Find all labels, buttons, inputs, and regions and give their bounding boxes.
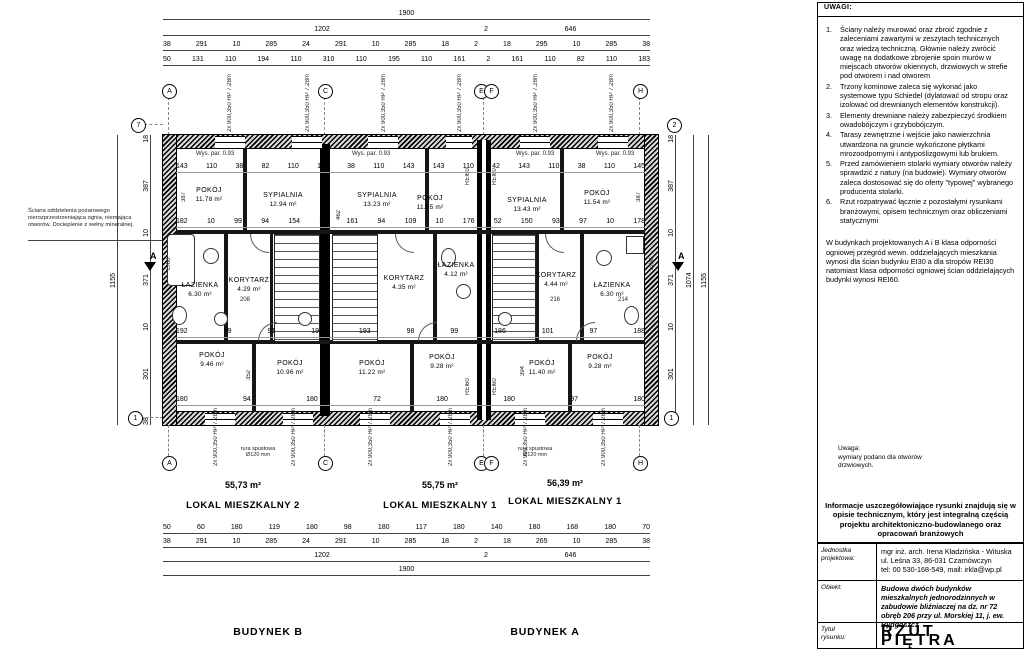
dim-top-total: 1900 xyxy=(163,10,650,20)
axis-2-right: 2 xyxy=(667,118,682,133)
stair-flight xyxy=(492,234,536,342)
dim-bot-row2: 38 291 10 285 24 291 10 285 18 2 18 265 … xyxy=(163,538,650,548)
room-name: POKÓJ xyxy=(429,353,455,362)
axis-c-bottom: C xyxy=(318,456,333,471)
dim-387: 387 xyxy=(636,178,642,202)
room-name: ŁAZIENKA xyxy=(181,281,218,290)
wall-class-label: REI60 xyxy=(492,365,498,395)
room-name: KORYTARZ xyxy=(384,274,425,283)
section-arrow-icon xyxy=(672,262,684,271)
party-wall xyxy=(477,140,491,420)
leader-line xyxy=(28,240,163,241)
window xyxy=(368,136,398,149)
notes-box: 1.Ściany należy murować oraz zbroić zgod… xyxy=(818,16,1023,543)
dim-216: 216 xyxy=(550,297,560,303)
room-name: SYPIALNIA xyxy=(263,191,303,200)
ext-wall-right xyxy=(645,135,658,425)
room-area: 4.35 m² xyxy=(384,283,425,292)
note-item: 4.Tarasy zewnętrzne i wejście jako nawie… xyxy=(826,130,1015,158)
dim-top-sub-left: 1202 xyxy=(163,26,481,36)
axis-h-bottom: H xyxy=(633,456,648,471)
designer-address: ul. Leśna 33, 86-031 Czarnówczyn xyxy=(881,556,1019,565)
note-item: 3.Elementy drewniane należy zabezpieczyć… xyxy=(826,111,1015,130)
note-number: 6. xyxy=(826,197,840,225)
room-area: 10.96 m² xyxy=(276,368,303,377)
note-text: Rzut rozpatrywać łącznie z pozostałymi r… xyxy=(840,197,1015,225)
room-area: 9.28 m² xyxy=(429,362,455,371)
axis-line xyxy=(639,425,640,456)
toilet xyxy=(624,306,639,325)
room-name: POKÓJ xyxy=(587,353,613,362)
window-mark: 2x 900,350 HP 7.28m xyxy=(457,92,463,132)
toilet xyxy=(172,306,187,325)
dim-top-sub-right: 646 xyxy=(491,26,650,36)
stair-flight xyxy=(332,234,378,342)
room-label: SYPIALNIA12.94 m² xyxy=(263,191,303,209)
room-name: KORYTARZ xyxy=(229,276,270,285)
window-mark: 2x 900,350 HP 7.28m xyxy=(291,428,297,466)
window xyxy=(446,136,472,149)
room-area: 4.44 m² xyxy=(536,280,577,289)
sink xyxy=(596,250,612,266)
axis-c-top: C xyxy=(318,84,333,99)
dim-bot-sub-mid: 2 xyxy=(481,552,491,562)
window-mark: 2x 900,350 HP 7.28m xyxy=(609,92,615,132)
unit-label: LOKAL MIESZKALNY 2 xyxy=(186,500,300,511)
note-item: 6.Rzut rozpatrywać łącznie z pozostałymi… xyxy=(826,197,1015,225)
drawing-title: RZUT PIĘTRA xyxy=(877,623,1023,649)
building-b-label: BUDYNEK B xyxy=(233,626,303,638)
axis-a-top: A xyxy=(162,84,177,99)
unit-area: 56,39 m² xyxy=(547,478,583,488)
dim-left-total: 1155 xyxy=(110,135,118,425)
designer-info: mgr inż. arch. Irena Kładzińska - Witusk… xyxy=(877,544,1023,581)
dim-right-segs: 38 301 10 371 10 387 18 xyxy=(668,135,676,425)
dim-bot-row1: 50 60 180 119 180 98 180 117 180 140 180… xyxy=(163,524,650,534)
room-label: POKÓJ9.28 m² xyxy=(429,353,455,371)
axis-line xyxy=(324,425,325,456)
window xyxy=(360,413,390,426)
note-text: Ściany należy murować oraz zbroić zgodni… xyxy=(840,25,1015,81)
axis-line xyxy=(324,97,325,135)
room-area: 12.94 m² xyxy=(263,200,303,209)
stair-flight xyxy=(274,234,320,342)
room-area: 9.28 m² xyxy=(587,362,613,371)
window-mark: 2x 900,350 HP 7.28m xyxy=(305,92,311,132)
downpipe-label: rura spustowa Ø120 mm xyxy=(505,446,565,458)
room-area: 11.40 m² xyxy=(529,368,556,377)
dim-left-segs: 38 301 10 371 10 387 18 xyxy=(143,135,151,425)
note-number: 4. xyxy=(826,130,840,158)
window xyxy=(440,413,470,426)
partition xyxy=(580,234,584,340)
sill-height-label: Wys. par. 0.93 xyxy=(516,151,554,157)
window xyxy=(520,136,550,149)
window xyxy=(283,413,313,426)
note-item: 5.Przed zamówieniem stolarki wymiary otw… xyxy=(826,159,1015,196)
room-area: 11.54 m² xyxy=(584,198,611,207)
room-area: 4.12 m² xyxy=(437,270,474,279)
dim-right-inner: 1074 xyxy=(686,135,694,425)
axis-7-left: 7 xyxy=(131,118,146,133)
window xyxy=(292,136,322,149)
title-block-object-row: Obiekt: Budowa dwóch budynków mieszkalny… xyxy=(818,580,1023,623)
axis-line xyxy=(144,124,163,125)
axis-h-top: H xyxy=(633,84,648,99)
note-text: Przed zamówieniem stolarki wymiary otwor… xyxy=(840,159,1015,196)
unit-area: 55,75 m² xyxy=(422,480,458,490)
room-label: KORYTARZ4.29 m² xyxy=(229,276,270,294)
note-item: 1.Ściany należy murować oraz zbroić zgod… xyxy=(826,25,1015,81)
note-text: Tarasy zewnętrzne i wejście jako nawierz… xyxy=(840,130,1015,158)
window-mark: 2x 900,350 HP 7.28m xyxy=(601,428,607,466)
floor-plan-sheet: 1900 1202 2 646 38 291 10 285 24 291 10 … xyxy=(0,0,1024,650)
title-block-designer-row: Jednostka projektowa: mgr inż. arch. Ire… xyxy=(818,543,1023,581)
fire-resistance-note: W budynkach projektowanych A i B klasa o… xyxy=(826,238,1015,284)
room-name: ŁAZIENKA xyxy=(593,281,630,290)
room-label: ŁAZIENKA6.30 m² xyxy=(181,281,218,299)
section-arrow-icon xyxy=(144,262,156,271)
object-label: Obiekt: xyxy=(818,581,877,623)
window xyxy=(215,136,245,149)
sink xyxy=(214,312,228,326)
window-mark: 2x 900,350 HP 7.28m xyxy=(381,92,387,132)
room-area: 11.55 m² xyxy=(417,203,444,212)
axis-line xyxy=(141,417,163,418)
room-label: SYPIALNIA13.23 m² xyxy=(357,191,397,209)
room-area: 13.43 m² xyxy=(507,205,547,214)
dim-387: 387 xyxy=(181,178,187,202)
room-area: 9.46 m² xyxy=(199,360,225,369)
room-label: KORYTARZ4.44 m² xyxy=(536,271,577,289)
dim-208: 208 xyxy=(240,297,250,303)
room-label: POKÓJ9.28 m² xyxy=(587,353,613,371)
room-label: POKÓJ11.40 m² xyxy=(529,359,556,377)
sink xyxy=(203,248,219,264)
window xyxy=(593,413,623,426)
note-number: 2. xyxy=(826,82,840,110)
room-name: SYPIALNIA xyxy=(507,196,547,205)
sink xyxy=(456,284,471,299)
dim-top-sub-mid: 2 xyxy=(481,26,491,36)
unit-label: LOKAL MIESZKALNY 1 xyxy=(508,496,622,507)
axis-1-right: 1 xyxy=(664,411,679,426)
window-mark: 2x 900,350 HP 7.28m xyxy=(368,428,374,466)
window xyxy=(515,413,545,426)
axis-line xyxy=(168,97,169,135)
wall-class-label: EI60 xyxy=(166,240,172,270)
note-number: 5. xyxy=(826,159,840,196)
room-label: ŁAZIENKA4.12 m² xyxy=(437,261,474,279)
dim-mid: 182 10 99 94 154 36 161 94 109 10 176 52… xyxy=(176,218,645,228)
note-text: Trzony kominowe zaleca się wykonać jako … xyxy=(840,82,1015,110)
room-name: POKÓJ xyxy=(417,194,444,203)
room-label: POKÓJ9.46 m² xyxy=(199,351,225,369)
dim-bot-sub-right: 646 xyxy=(491,552,650,562)
axis-line xyxy=(168,425,169,456)
axis-1-left: 1 xyxy=(128,411,143,426)
window xyxy=(205,413,235,426)
room-label: POKÓJ11.78 m² xyxy=(196,186,223,204)
room-label: POKÓJ11.22 m² xyxy=(359,359,386,377)
axis-line xyxy=(483,97,484,135)
window-mark: 2x 900,350 HP 7.28m xyxy=(448,428,454,466)
dim-right-total: 1155 xyxy=(701,135,709,425)
room-name: POKÓJ xyxy=(199,351,225,360)
room-name: POKÓJ xyxy=(584,189,611,198)
sink xyxy=(498,312,512,326)
room-area: 4.29 m² xyxy=(229,285,270,294)
window-mark: 2x 900,350 HP 7.28m xyxy=(227,92,233,132)
designer-name: mgr inż. arch. Irena Kładzińska - Witusk… xyxy=(881,547,1019,556)
room-label: KORYTARZ4.35 m² xyxy=(384,274,425,292)
info-bold-note: Informacje uszczegółowiające rysunki zna… xyxy=(822,501,1019,539)
room-name: SYPIALNIA xyxy=(357,191,397,200)
drawing-title-label: Tytuł rysunku: xyxy=(818,623,877,649)
note-number: 1. xyxy=(826,25,840,81)
room-name: POKÓJ xyxy=(196,186,223,195)
room-label: POKÓJ11.54 m² xyxy=(584,189,611,207)
room-area: 11.22 m² xyxy=(359,368,386,377)
unit-separation-wall xyxy=(320,144,330,416)
room-label: SYPIALNIA13.43 m² xyxy=(507,196,547,214)
building-a-label: BUDYNEK A xyxy=(510,626,579,638)
room-name: KORYTARZ xyxy=(536,271,577,280)
designer-label: Jednostka projektowa: xyxy=(818,544,877,581)
dim-bot-total: 1900 xyxy=(163,566,650,576)
section-label: A xyxy=(678,251,685,261)
window-mark: 2x 900,350 HP 7.28m xyxy=(533,92,539,132)
title-block-title-row: Tytuł rysunku: RZUT PIĘTRA xyxy=(818,622,1023,649)
room-name: POKÓJ xyxy=(359,359,386,368)
sill-height-label: Wys. par. 0.93 xyxy=(352,151,390,157)
door-arc xyxy=(250,234,269,253)
dim-462: 462 xyxy=(336,196,342,220)
room-label: POKÓJ10.96 m² xyxy=(276,359,303,377)
axis-line xyxy=(639,97,640,135)
dim-394: 394 xyxy=(520,352,526,376)
designer-contact: tel: 00 530-168-549, mail: irkla@wp.pl xyxy=(881,565,1019,574)
uwagi-heading: UWAGI: xyxy=(824,4,852,11)
notes-and-title-block-panel: UWAGI: 1.Ściany należy murować oraz zbro… xyxy=(817,2,1024,649)
dim-bottom-rooms: 180 94 180 72 180 180 97 180 xyxy=(176,396,645,406)
downpipe-label: rura spustowa Ø120 mm xyxy=(228,446,288,458)
door-dims-note: Uwaga: wymiary podano dla otworów drzwio… xyxy=(838,445,922,471)
door-arc xyxy=(395,234,414,253)
door-arc xyxy=(545,234,564,253)
axis-line xyxy=(483,425,484,456)
dim-corridor: 192 99 91 194 193 98 99 186 101 97 188 xyxy=(176,328,645,338)
wall-class-label: EI60 xyxy=(649,240,655,270)
room-label: POKÓJ11.55 m² xyxy=(417,194,444,212)
object-description: Budowa dwóch budynków mieszkalnych jedno… xyxy=(877,581,1023,623)
unit-label: LOKAL MIESZKALNY 1 xyxy=(383,500,497,511)
ext-wall-bottom xyxy=(163,412,658,425)
dim-214: 214 xyxy=(618,297,628,303)
wall-class-label: REI60 xyxy=(465,365,471,395)
note-item: 2.Trzony kominowe zaleca się wykonać jak… xyxy=(826,82,1015,110)
axis-a-bottom: A xyxy=(162,456,177,471)
sill-height-label: Wys. par. 0.93 xyxy=(196,151,234,157)
room-name: POKÓJ xyxy=(276,359,303,368)
dim-352: 352 xyxy=(246,356,252,380)
room-area: 11.78 m² xyxy=(196,195,223,204)
dim-bot-sub-left: 1202 xyxy=(163,552,481,562)
section-label: A xyxy=(150,251,157,261)
room-name: POKÓJ xyxy=(529,359,556,368)
dim-top-row2: 50 131 110 194 110 310 110 195 110 161 2… xyxy=(163,56,650,66)
fire-wall-note: Ściana oddzielenia pożarowego nierozprze… xyxy=(28,208,150,229)
window xyxy=(598,136,628,149)
window-mark: 2x 900,350 HP 7.28m xyxy=(213,428,219,466)
note-text: Elementy drewniane należy zabezpieczyć ś… xyxy=(840,111,1015,130)
room-name: ŁAZIENKA xyxy=(437,261,474,270)
sink xyxy=(298,312,312,326)
axis-f-bottom: F xyxy=(484,456,499,471)
dim-top-row1: 38 291 10 285 24 291 10 285 18 2 18 295 … xyxy=(163,41,650,51)
sill-height-label: Wys. par. 0.93 xyxy=(596,151,634,157)
axis-f-top: F xyxy=(484,84,499,99)
washer xyxy=(626,236,644,254)
note-number: 3. xyxy=(826,111,840,130)
dim-sills: 143 110 38 82 110 143 38 110 143 143 110… xyxy=(176,163,645,173)
unit-area: 55,73 m² xyxy=(225,480,261,490)
room-area: 6.30 m² xyxy=(181,290,218,299)
room-area: 13.23 m² xyxy=(357,200,397,209)
